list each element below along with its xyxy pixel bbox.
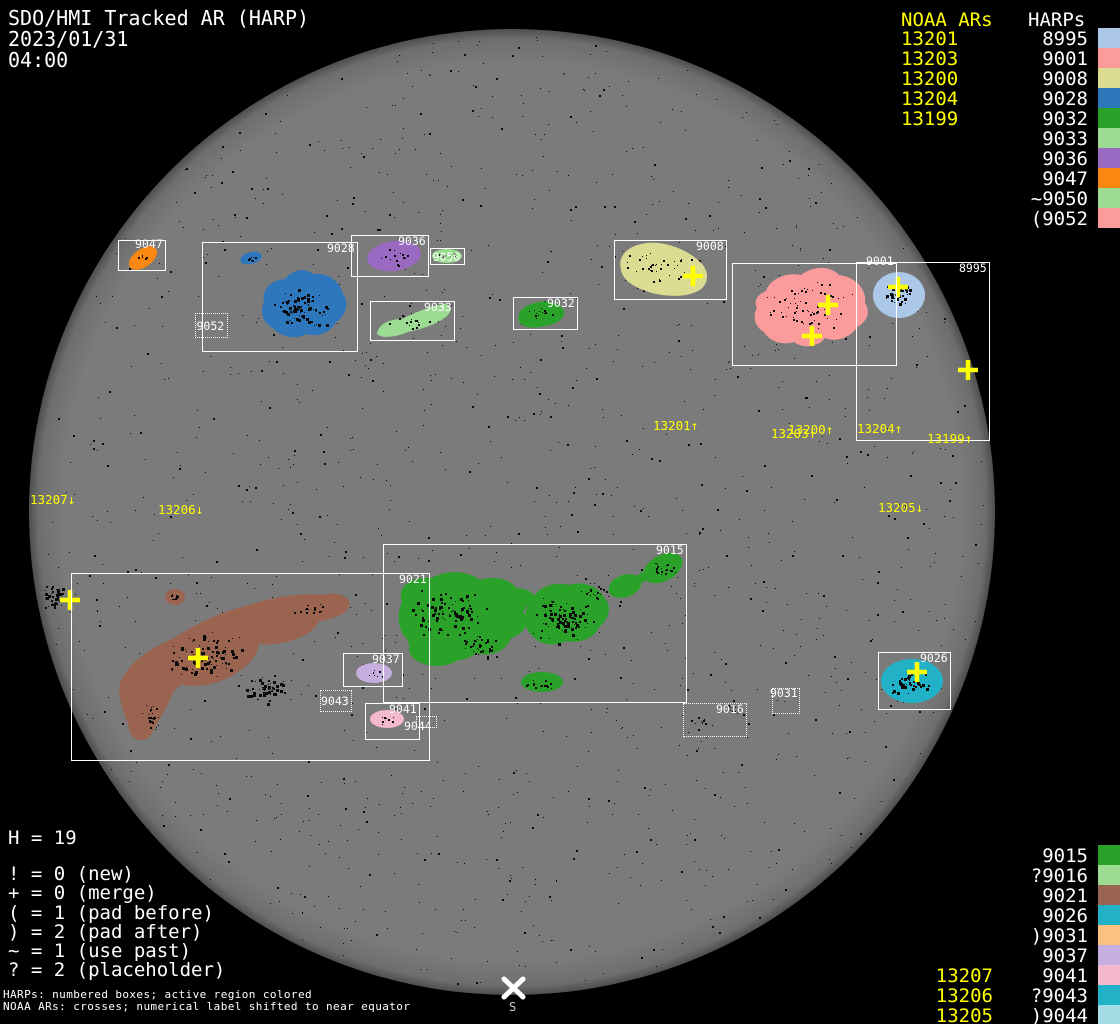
noaa-ar-number: 13206	[901, 985, 993, 1007]
harp-list-row: ?9016	[901, 865, 1120, 885]
noaa-label-13204: 13204↑	[857, 422, 902, 435]
harp-color-swatch	[1098, 865, 1120, 885]
harp-color-swatch	[1098, 168, 1120, 188]
harp-color-swatch	[1098, 1005, 1120, 1024]
legend-line: ( = 1 (pad before)	[8, 904, 225, 923]
harp-list-row: ~9050	[901, 188, 1120, 208]
harp-number: 9037	[996, 945, 1088, 967]
harp-list-row: 9047	[901, 168, 1120, 188]
harp-list-row: 132049028	[901, 88, 1120, 108]
harp-list-row: 132018995	[901, 28, 1120, 48]
harp-list-row: 132039001	[901, 48, 1120, 68]
noaa-label-13203: 13203↑	[771, 427, 816, 440]
harp-color-swatch	[1098, 128, 1120, 148]
harp-list-row: )9031	[901, 925, 1120, 945]
legend-line: + = 0 (merge)	[8, 884, 225, 903]
harp-list-row: 132009008	[901, 68, 1120, 88]
harp-color-swatch	[1098, 965, 1120, 985]
harp-color-swatch	[1098, 148, 1120, 168]
harp-list-row: 9037	[901, 945, 1120, 965]
harp-list-row: 9026	[901, 905, 1120, 925]
harp-list-row: 13205)9044	[901, 1005, 1120, 1024]
harp-number: 9032	[996, 108, 1088, 130]
harp-number: 8995	[996, 28, 1088, 50]
harp-color-swatch	[1098, 845, 1120, 865]
legend-line: ? = 2 (placeholder)	[8, 961, 225, 980]
harp-color-swatch	[1098, 905, 1120, 925]
noaa-ar-number: 13201	[901, 28, 993, 50]
harp-number: 9015	[996, 845, 1088, 867]
harp-list-row: 9015	[901, 845, 1120, 865]
harp-number: 9001	[996, 48, 1088, 70]
harp-number: ~9050	[996, 188, 1088, 210]
harp-list-row: 13206?9043	[901, 985, 1120, 1005]
plot-date: 2023/01/31	[8, 29, 128, 50]
noaa-ar-number: 13200	[901, 68, 993, 90]
harp-number: 9047	[996, 168, 1088, 190]
noaa-ar-number: 13204	[901, 88, 993, 110]
harp-color-swatch	[1098, 188, 1120, 208]
harp-color-swatch	[1098, 108, 1120, 128]
harp-list-row: 9021	[901, 885, 1120, 905]
plot-time: 04:00	[8, 50, 68, 71]
harp-number: 9026	[996, 905, 1088, 927]
harp-color-swatch	[1098, 28, 1120, 48]
noaa-ar-number: 13199	[901, 108, 993, 130]
noaa-ar-number: 13205	[901, 1005, 993, 1024]
footer-noaa-note: NOAA ARs: crosses; numerical label shift…	[3, 1001, 410, 1013]
noaa-label-13206: 13206↓	[158, 503, 203, 516]
harp-color-swatch	[1098, 48, 1120, 68]
harp-color-swatch	[1098, 88, 1120, 108]
harp-color-swatch	[1098, 985, 1120, 1005]
harp-number: 9021	[996, 885, 1088, 907]
harp-visualization: 9047902890529036905090339032900890018995…	[0, 0, 1120, 1024]
harp-list-row: 131999032	[901, 108, 1120, 128]
harp-color-swatch	[1098, 945, 1120, 965]
noaa-label-13199: 13199↑	[927, 432, 972, 445]
harp-list-row: (9052	[901, 208, 1120, 228]
harp-color-swatch	[1098, 925, 1120, 945]
harp-number: 9028	[996, 88, 1088, 110]
harp-number: 9036	[996, 148, 1088, 170]
plot-title: SDO/HMI Tracked AR (HARP)	[8, 8, 309, 29]
noaa-label-13207: 13207↓	[30, 493, 75, 506]
harp-list-row: 9036	[901, 148, 1120, 168]
harp-count: H = 19	[8, 829, 77, 848]
noaa-label-13205: 13205↓	[878, 501, 923, 514]
harp-color-swatch	[1098, 68, 1120, 88]
flag-legend: ! = 0 (new)+ = 0 (merge)( = 1 (pad befor…	[8, 865, 225, 981]
harp-number: 9033	[996, 128, 1088, 150]
harp-number: 9008	[996, 68, 1088, 90]
south-label: S	[509, 1000, 516, 1014]
harp-number: ?9016	[996, 865, 1088, 887]
noaa-ar-number: 13203	[901, 48, 993, 70]
harp-color-swatch	[1098, 885, 1120, 905]
harp-color-swatch	[1098, 208, 1120, 228]
noaa-ar-number: 13207	[901, 965, 993, 987]
harp-number: )9044	[996, 1005, 1088, 1024]
harp-list-row: 9033	[901, 128, 1120, 148]
harp-number: ?9043	[996, 985, 1088, 1007]
noaa-label-13201: 13201↑	[653, 419, 698, 432]
harp-number: (9052	[996, 208, 1088, 230]
harp-number: )9031	[996, 925, 1088, 947]
harp-list-row: 132079041	[901, 965, 1120, 985]
harp-number: 9041	[996, 965, 1088, 987]
